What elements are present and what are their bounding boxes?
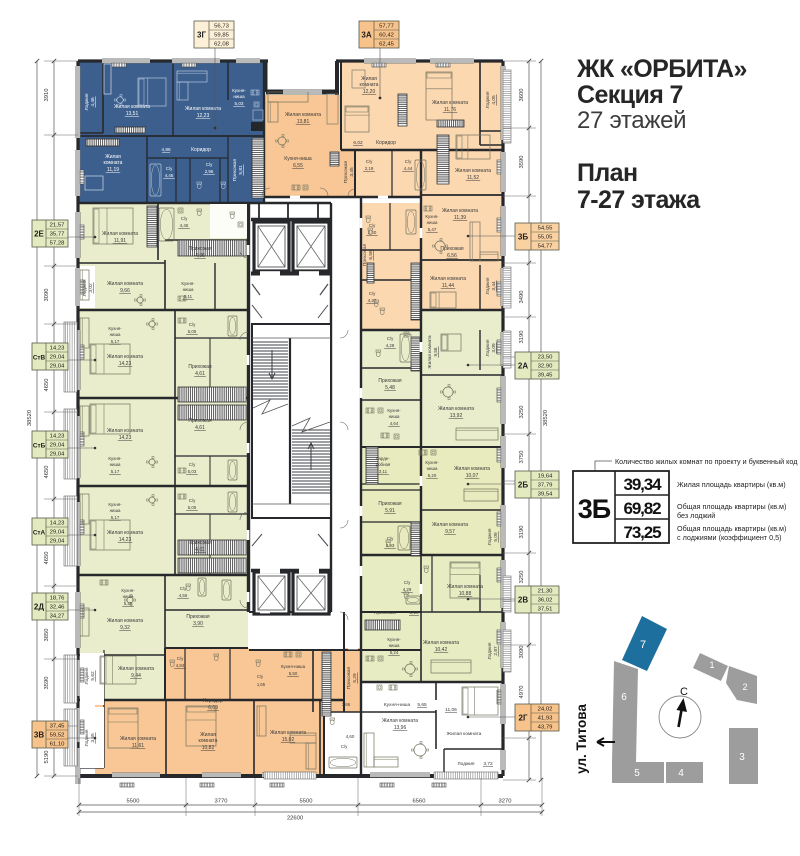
svg-text:комната: комната xyxy=(199,738,218,744)
svg-text:План: План xyxy=(577,159,637,187)
svg-text:Жилая комната: Жилая комната xyxy=(432,100,468,106)
svg-text:2,87: 2,87 xyxy=(493,646,499,656)
svg-text:Жилая комната: Жилая комната xyxy=(432,522,468,528)
svg-text:Прихожая: Прихожая xyxy=(374,610,397,616)
svg-text:2В: 2В xyxy=(518,596,528,605)
svg-text:3490: 3490 xyxy=(519,291,525,304)
svg-text:комната: комната xyxy=(360,82,379,88)
svg-text:10,88: 10,88 xyxy=(459,591,472,597)
svg-text:С/у: С/у xyxy=(369,291,376,296)
svg-text:37,45: 37,45 xyxy=(50,724,65,730)
svg-text:21,57: 21,57 xyxy=(50,223,65,229)
svg-text:34,27: 34,27 xyxy=(50,614,65,620)
svg-text:Лоджия: Лоджия xyxy=(485,91,491,108)
svg-text:Коридор: Коридор xyxy=(376,140,396,146)
svg-text:Лоджия: Лоджия xyxy=(485,277,491,294)
svg-text:38520: 38520 xyxy=(27,410,33,426)
svg-text:3,66: 3,66 xyxy=(342,702,351,707)
svg-text:11,06: 11,06 xyxy=(445,707,457,713)
svg-text:СтА: СтА xyxy=(33,530,46,537)
svg-text:4,61: 4,61 xyxy=(195,547,205,553)
svg-text:4,44: 4,44 xyxy=(404,166,413,171)
svg-text:13,51: 13,51 xyxy=(126,111,139,117)
svg-text:5,81: 5,81 xyxy=(238,165,244,175)
svg-text:Жилая комната: Жилая комната xyxy=(430,276,466,282)
svg-text:ниша: ниша xyxy=(110,508,121,513)
svg-text:54,77: 54,77 xyxy=(538,244,553,250)
svg-text:Лоджия: Лоджия xyxy=(485,339,491,356)
svg-text:5500: 5500 xyxy=(300,799,313,805)
svg-text:3850: 3850 xyxy=(44,629,50,642)
svg-text:6,56: 6,56 xyxy=(368,250,374,260)
svg-text:11,76: 11,76 xyxy=(444,107,456,113)
svg-text:Жилая комната: Жилая комната xyxy=(185,106,221,112)
svg-text:2Г: 2Г xyxy=(519,714,528,723)
svg-text:61,10: 61,10 xyxy=(50,742,65,748)
svg-text:14,23: 14,23 xyxy=(50,521,65,527)
svg-text:9,32: 9,32 xyxy=(120,625,130,631)
svg-text:4650: 4650 xyxy=(44,466,50,479)
svg-text:4,61: 4,61 xyxy=(195,425,205,431)
svg-text:Прихожая: Прихожая xyxy=(378,378,401,384)
svg-text:С/у: С/у xyxy=(189,322,196,327)
svg-text:5,17: 5,17 xyxy=(111,339,120,344)
svg-text:ниша: ниша xyxy=(110,332,121,337)
svg-text:Кухня-: Кухня- xyxy=(108,502,122,507)
svg-text:60,42: 60,42 xyxy=(379,33,394,39)
svg-text:39,54: 39,54 xyxy=(538,492,553,498)
svg-text:Жилая комната: Жилая комната xyxy=(447,731,482,737)
svg-text:3В: 3В xyxy=(34,731,44,740)
svg-text:Кухня-: Кухня- xyxy=(387,408,401,413)
svg-text:3600: 3600 xyxy=(519,89,525,102)
svg-text:Лоджия: Лоджия xyxy=(487,528,493,545)
svg-text:3090: 3090 xyxy=(519,646,525,659)
svg-text:Прихожая: Прихожая xyxy=(188,540,211,546)
svg-text:3А: 3А xyxy=(361,31,371,40)
svg-text:Лоджия: Лоджия xyxy=(458,761,475,767)
svg-text:14,23: 14,23 xyxy=(119,435,132,441)
svg-text:ниша: ниша xyxy=(427,220,438,225)
svg-text:Жилая комната: Жилая комната xyxy=(114,104,150,110)
svg-text:5,19: 5,19 xyxy=(409,610,419,616)
svg-text:5,91: 5,91 xyxy=(385,508,395,514)
svg-text:Жилая комната: Жилая комната xyxy=(285,112,321,118)
svg-text:36,02: 36,02 xyxy=(538,598,553,604)
svg-text:Прихожая: Прихожая xyxy=(186,614,209,620)
svg-text:43,79: 43,79 xyxy=(538,725,553,731)
svg-text:Гарде-: Гарде- xyxy=(376,456,390,461)
svg-text:4970: 4970 xyxy=(519,686,525,699)
svg-text:73,25: 73,25 xyxy=(623,523,661,542)
svg-text:7-27 этажа: 7-27 этажа xyxy=(577,186,701,214)
svg-text:5500: 5500 xyxy=(127,799,140,805)
svg-text:Лоджия: Лоджия xyxy=(82,279,88,296)
svg-text:21,30: 21,30 xyxy=(538,589,553,595)
svg-text:4,46: 4,46 xyxy=(90,97,96,107)
svg-text:без лоджий: без лоджий xyxy=(677,511,715,520)
svg-text:Прихожая: Прихожая xyxy=(232,158,238,181)
svg-text:4: 4 xyxy=(678,768,684,779)
svg-text:Общая площадь квартиры (кв.м): Общая площадь квартиры (кв.м) xyxy=(677,524,786,533)
svg-text:3Б: 3Б xyxy=(518,233,528,242)
svg-text:14,23: 14,23 xyxy=(119,361,132,367)
svg-text:Кухня-: Кухня- xyxy=(121,588,135,593)
svg-text:2А: 2А xyxy=(518,362,528,371)
svg-text:Кухня-: Кухня- xyxy=(181,281,195,286)
svg-text:Жилая комната: Жилая комната xyxy=(107,530,143,536)
svg-text:57,77: 57,77 xyxy=(379,24,394,30)
svg-text:11,44: 11,44 xyxy=(442,283,454,289)
svg-text:59,85: 59,85 xyxy=(214,33,229,39)
svg-text:2,19: 2,19 xyxy=(365,166,374,171)
svg-text:4,64: 4,64 xyxy=(390,421,399,426)
svg-text:С/у: С/у xyxy=(189,498,196,503)
svg-text:3190: 3190 xyxy=(519,331,525,344)
svg-text:62,45: 62,45 xyxy=(379,42,394,48)
svg-text:29,04: 29,04 xyxy=(50,452,65,458)
svg-text:3910: 3910 xyxy=(44,89,50,102)
svg-text:Прихожая: Прихожая xyxy=(188,418,211,424)
svg-text:С/у: С/у xyxy=(366,159,373,164)
svg-text:Кухня-ниша: Кухня-ниша xyxy=(384,702,411,708)
svg-text:55,05: 55,05 xyxy=(538,235,553,241)
svg-text:12,23: 12,23 xyxy=(197,113,210,119)
svg-text:6560: 6560 xyxy=(413,799,426,805)
svg-text:Лоджия: Лоджия xyxy=(84,667,90,684)
svg-text:56,73: 56,73 xyxy=(214,24,229,30)
svg-text:Кухня-ниша: Кухня-ниша xyxy=(284,156,312,162)
svg-text:1: 1 xyxy=(709,660,714,670)
svg-text:3,09: 3,09 xyxy=(491,343,497,353)
svg-text:13,92: 13,92 xyxy=(450,413,463,419)
svg-text:ЖК «ОРБИТА»: ЖК «ОРБИТА» xyxy=(576,55,747,83)
svg-text:Жилая комната: Жилая комната xyxy=(427,335,432,369)
svg-text:3,11: 3,11 xyxy=(379,469,388,474)
svg-text:3Г: 3Г xyxy=(197,31,206,40)
svg-text:13,96: 13,96 xyxy=(394,725,407,731)
svg-text:Прихожая: Прихожая xyxy=(188,364,211,370)
svg-text:Коридор: Коридор xyxy=(191,147,211,153)
svg-text:3Б: 3Б xyxy=(578,494,611,524)
svg-text:2Д: 2Д xyxy=(34,603,44,612)
svg-text:5,48: 5,48 xyxy=(385,385,395,391)
svg-text:7: 7 xyxy=(640,639,646,651)
svg-text:3090: 3090 xyxy=(44,289,50,302)
svg-text:Жилая комната: Жилая комната xyxy=(438,406,474,412)
svg-text:11,52: 11,52 xyxy=(467,175,479,181)
svg-text:ниша: ниша xyxy=(183,287,194,292)
svg-text:С/у: С/у xyxy=(189,462,196,467)
svg-text:6,02: 6,02 xyxy=(353,140,363,146)
svg-text:2,96: 2,96 xyxy=(205,169,214,174)
svg-text:14,23: 14,23 xyxy=(119,537,132,543)
svg-text:3590: 3590 xyxy=(44,677,50,690)
svg-text:Кухня-ниша: Кухня-ниша xyxy=(281,664,306,669)
svg-text:Жилая площадь квартиры (кв.м): Жилая площадь квартиры (кв.м) xyxy=(677,480,786,489)
svg-text:35,77: 35,77 xyxy=(50,232,65,238)
svg-text:5,03: 5,03 xyxy=(188,469,197,474)
svg-text:4,66: 4,66 xyxy=(195,253,205,259)
svg-text:14,23: 14,23 xyxy=(50,434,65,440)
svg-text:Количество жилых комнат по про: Количество жилых комнат по проекту и бук… xyxy=(615,457,798,466)
svg-text:4,05: 4,05 xyxy=(491,95,497,105)
svg-text:9,58: 9,58 xyxy=(433,347,438,356)
svg-text:5,09: 5,09 xyxy=(493,532,499,542)
svg-text:С/у: С/у xyxy=(369,223,376,228)
svg-text:3,90: 3,90 xyxy=(193,621,203,627)
svg-text:19,64: 19,64 xyxy=(538,474,553,480)
svg-text:29,04: 29,04 xyxy=(50,443,65,449)
svg-text:Кухня-: Кухня- xyxy=(425,460,439,465)
svg-text:69,82: 69,82 xyxy=(623,499,661,518)
svg-text:ул. Титова: ул. Титова xyxy=(574,704,589,774)
svg-text:с лоджиями (коэффициент 0,5): с лоджиями (коэффициент 0,5) xyxy=(677,533,781,542)
svg-text:4650: 4650 xyxy=(44,552,50,565)
svg-text:Лоджия: Лоджия xyxy=(487,642,493,659)
svg-text:С/у: С/у xyxy=(257,674,264,679)
svg-text:32,46: 32,46 xyxy=(50,605,65,611)
svg-text:29,04: 29,04 xyxy=(50,530,65,536)
svg-text:Кухня-: Кухня- xyxy=(232,88,246,93)
svg-text:Прихожая: Прихожая xyxy=(343,160,349,183)
svg-text:С/у: С/у xyxy=(180,586,187,591)
svg-text:Жилая комната: Жилая комната xyxy=(454,466,490,472)
svg-text:29,04: 29,04 xyxy=(50,364,65,370)
svg-text:С/у: С/у xyxy=(387,336,394,341)
svg-text:39,45: 39,45 xyxy=(538,373,553,379)
svg-text:Кухня-: Кухня- xyxy=(108,326,122,331)
svg-text:4,29: 4,29 xyxy=(403,587,412,592)
svg-text:32,90: 32,90 xyxy=(538,364,553,370)
svg-text:Лоджия: Лоджия xyxy=(84,93,90,110)
svg-text:Жилая комната: Жилая комната xyxy=(423,640,459,646)
svg-text:5,05: 5,05 xyxy=(188,329,197,334)
svg-text:3,44: 3,44 xyxy=(491,281,497,291)
svg-text:37,79: 37,79 xyxy=(538,483,553,489)
svg-text:13,81: 13,81 xyxy=(297,119,310,125)
svg-text:59,52: 59,52 xyxy=(50,733,65,739)
svg-text:12,20: 12,20 xyxy=(363,89,376,95)
svg-text:СтБ: СтБ xyxy=(33,443,46,450)
svg-text:5,11: 5,11 xyxy=(184,294,193,299)
svg-text:10,07: 10,07 xyxy=(466,473,479,479)
svg-text:11,91: 11,91 xyxy=(114,238,126,244)
svg-text:62,08: 62,08 xyxy=(214,42,229,48)
svg-text:Жилая комната: Жилая комната xyxy=(107,281,143,287)
svg-text:С/у: С/у xyxy=(404,580,411,585)
svg-text:Жилая комната: Жилая комната xyxy=(382,718,418,724)
svg-text:2: 2 xyxy=(742,682,747,692)
svg-text:5,03: 5,03 xyxy=(235,101,244,106)
svg-text:18,76: 18,76 xyxy=(50,596,65,602)
svg-text:1,65: 1,65 xyxy=(257,682,266,687)
svg-text:С/у: С/у xyxy=(206,162,213,167)
svg-text:3190: 3190 xyxy=(519,526,525,539)
svg-text:3250: 3250 xyxy=(519,571,525,584)
svg-text:14,23: 14,23 xyxy=(50,346,65,352)
svg-text:2Е: 2Е xyxy=(34,230,44,239)
svg-text:24,02: 24,02 xyxy=(538,707,553,713)
svg-text:22600: 22600 xyxy=(287,816,303,822)
svg-text:4,60: 4,60 xyxy=(346,734,355,739)
svg-text:5,05: 5,05 xyxy=(188,505,197,510)
svg-text:6,55: 6,55 xyxy=(293,163,303,169)
svg-text:Коридор: Коридор xyxy=(203,698,223,704)
svg-text:3250: 3250 xyxy=(519,406,525,419)
svg-text:С/у: С/у xyxy=(177,656,184,661)
svg-text:С: С xyxy=(680,686,688,698)
svg-text:Кухня-: Кухня- xyxy=(425,214,439,219)
svg-text:Кухня-: Кухня- xyxy=(387,637,401,642)
svg-text:5190: 5190 xyxy=(44,751,50,764)
svg-text:3770: 3770 xyxy=(215,799,228,805)
svg-text:11,19: 11,19 xyxy=(107,167,119,173)
svg-text:4,84: 4,84 xyxy=(176,663,185,668)
svg-text:Жилая комната: Жилая комната xyxy=(442,208,478,214)
svg-text:29,04: 29,04 xyxy=(50,539,65,545)
svg-text:29,04: 29,04 xyxy=(50,355,65,361)
svg-text:3270: 3270 xyxy=(499,799,512,805)
svg-text:4,61: 4,61 xyxy=(195,371,205,377)
svg-text:4,86: 4,86 xyxy=(161,147,171,153)
svg-text:57,28: 57,28 xyxy=(50,241,65,247)
svg-text:5,24: 5,24 xyxy=(390,650,399,655)
svg-text:Жилая комната: Жилая комната xyxy=(447,584,483,590)
svg-text:С/у: С/у xyxy=(166,166,173,171)
svg-text:3: 3 xyxy=(739,752,745,763)
svg-text:11,39: 11,39 xyxy=(454,215,466,221)
svg-text:5,50: 5,50 xyxy=(289,671,298,676)
svg-text:робная: робная xyxy=(376,462,391,467)
svg-text:23,50: 23,50 xyxy=(538,355,553,361)
svg-text:39,34: 39,34 xyxy=(623,475,662,494)
svg-text:Жилая комната: Жилая комната xyxy=(107,618,143,624)
svg-text:27 этажей: 27 этажей xyxy=(577,107,686,134)
svg-text:Жилая комната: Жилая комната xyxy=(107,428,143,434)
svg-text:5,17: 5,17 xyxy=(111,469,120,474)
svg-text:ниша: ниша xyxy=(389,643,400,648)
svg-text:комната: комната xyxy=(104,160,123,166)
svg-text:5,65: 5,65 xyxy=(417,702,427,708)
svg-text:15,02: 15,02 xyxy=(282,737,295,743)
svg-text:Общая площадь квартиры (кв.м): Общая площадь квартиры (кв.м) xyxy=(677,502,786,511)
svg-text:С/у: С/у xyxy=(405,159,412,164)
svg-text:ниша: ниша xyxy=(110,462,121,467)
svg-text:5,47: 5,47 xyxy=(428,227,437,232)
svg-text:Прихожая: Прихожая xyxy=(378,501,401,507)
svg-text:5: 5 xyxy=(634,768,640,779)
svg-text:5,62: 5,62 xyxy=(90,671,96,681)
svg-text:Прихожая: Прихожая xyxy=(188,246,211,252)
svg-text:3750: 3750 xyxy=(519,451,525,464)
svg-text:4,45: 4,45 xyxy=(165,173,174,178)
svg-text:С/у: С/у xyxy=(341,744,348,749)
svg-text:С/у: С/у xyxy=(181,216,188,221)
svg-text:Прихожая: Прихожая xyxy=(362,243,368,266)
svg-text:4650: 4650 xyxy=(44,379,50,392)
svg-text:9,66: 9,66 xyxy=(120,288,130,294)
svg-text:5,20: 5,20 xyxy=(428,473,437,478)
svg-text:37,51: 37,51 xyxy=(538,607,553,613)
svg-text:10,42: 10,42 xyxy=(435,647,448,653)
svg-text:ниша: ниша xyxy=(233,94,245,99)
svg-text:Кухня-: Кухня- xyxy=(108,456,122,461)
svg-text:3590: 3590 xyxy=(519,156,525,169)
svg-text:СтВ: СтВ xyxy=(33,355,46,362)
svg-text:2Б: 2Б xyxy=(518,481,528,490)
svg-text:6: 6 xyxy=(621,692,627,703)
svg-text:4,55: 4,55 xyxy=(179,593,188,598)
svg-text:4,45: 4,45 xyxy=(180,223,189,228)
svg-text:5,29: 5,29 xyxy=(352,673,358,683)
svg-text:Жилая комната: Жилая комната xyxy=(455,168,491,174)
svg-text:ниша: ниша xyxy=(389,414,400,419)
svg-text:Прихожая: Прихожая xyxy=(346,666,352,689)
svg-text:41,93: 41,93 xyxy=(538,716,553,722)
svg-text:3,72: 3,72 xyxy=(483,761,493,767)
svg-text:3,45: 3,45 xyxy=(349,167,355,177)
svg-text:ниша: ниша xyxy=(427,466,438,471)
svg-text:Жилая комната: Жилая комната xyxy=(107,354,143,360)
svg-text:5,17: 5,17 xyxy=(111,515,120,520)
svg-text:54,55: 54,55 xyxy=(538,226,553,232)
svg-text:38520: 38520 xyxy=(543,410,549,426)
svg-text:4,28: 4,28 xyxy=(386,343,395,348)
svg-text:9,57: 9,57 xyxy=(445,529,455,535)
svg-text:6,56: 6,56 xyxy=(447,253,457,259)
svg-text:Секция 7: Секция 7 xyxy=(577,81,683,109)
